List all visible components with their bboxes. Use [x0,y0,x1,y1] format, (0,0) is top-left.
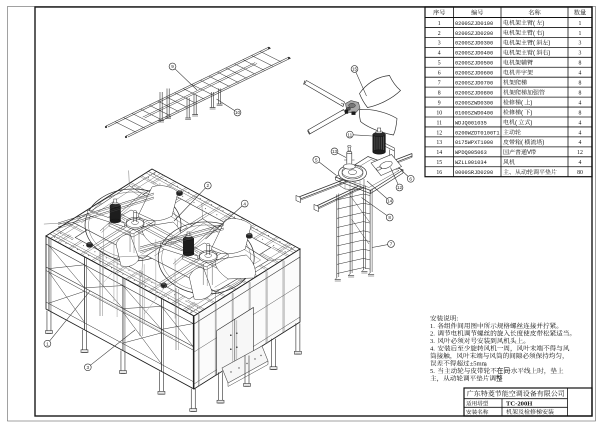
svg-text:12: 12 [397,185,403,190]
svg-text:0175WPXT1000: 0175WPXT1000 [455,140,493,146]
svg-text:5: 5 [438,61,441,67]
svg-text:0000SRJD0200: 0000SRJD0200 [455,170,493,176]
svg-text:0200SZJD0500: 0200SZJD0500 [455,61,493,67]
svg-text:WZLL001034: WZLL001034 [455,160,487,166]
svg-text:4: 4 [579,140,582,146]
svg-text::: : [456,316,458,323]
svg-text:0200SZJD0600: 0200SZJD0600 [455,71,493,77]
svg-text:): ) [542,31,544,37]
svg-text:11: 11 [347,132,352,137]
svg-text:WPDQ005063: WPDQ005063 [455,150,487,156]
svg-text:): ) [530,110,532,116]
svg-text:1: 1 [579,31,582,37]
svg-text:8: 8 [579,110,582,116]
svg-text:0100SZWD0400: 0100SZWD0400 [455,110,493,116]
svg-text:(: ( [521,110,523,116]
svg-text:13: 13 [332,149,338,154]
svg-text:6: 6 [438,71,441,77]
svg-text:V: V [527,150,531,156]
svg-text:1: 1 [438,21,441,27]
svg-text:4.: 4. [430,346,435,353]
svg-text:8: 8 [438,90,441,96]
svg-text:(: ( [521,100,523,106]
svg-text:8: 8 [579,90,582,96]
svg-text:): ) [548,51,550,57]
svg-text:在同: 在同 [497,366,511,375]
svg-text:0200SZJD0100: 0200SZJD0100 [455,21,493,27]
svg-text:13: 13 [436,140,442,146]
svg-text:4: 4 [579,120,582,126]
svg-text:0200SZJD0300: 0200SZJD0300 [455,41,493,47]
svg-text:10: 10 [235,110,241,115]
svg-text:整: 整 [496,374,503,383]
svg-text:±5mm: ±5mm [470,361,488,368]
svg-text:9: 9 [438,100,441,106]
svg-text:8: 8 [579,61,582,67]
svg-text:5.: 5. [430,368,435,375]
svg-text:3.: 3. [430,338,435,345]
svg-text:0200SZWD0300: 0200SZWD0300 [455,100,493,106]
svg-text:0200WZDT0100T1: 0200WZDT0100T1 [455,130,500,136]
svg-text:3: 3 [438,41,441,47]
svg-text:1: 1 [46,341,49,346]
svg-text:(: ( [515,120,517,126]
svg-text:TC-200H: TC-200H [506,401,533,408]
svg-text:7: 7 [390,242,393,247]
svg-text:11: 11 [436,120,442,126]
svg-text:8: 8 [579,81,582,87]
svg-text:15: 15 [352,67,358,72]
svg-text:3: 3 [579,41,582,47]
svg-text:): ) [542,140,544,146]
svg-text:2.: 2. [430,331,435,338]
svg-text:): ) [530,120,532,126]
svg-text:): ) [530,100,532,106]
svg-text:3: 3 [579,51,582,57]
svg-text:6: 6 [409,177,412,182]
svg-text:15: 15 [436,160,442,166]
svg-text:4: 4 [438,51,441,57]
svg-text:0200SZJD0800: 0200SZJD0800 [455,90,493,96]
svg-text:2: 2 [438,31,441,37]
svg-text:3: 3 [87,365,90,370]
svg-text:9: 9 [171,64,174,69]
svg-text:14: 14 [387,199,393,204]
svg-text:(: ( [533,51,535,57]
svg-text:1.: 1. [430,323,435,330]
svg-text:80: 80 [577,170,583,176]
svg-text:(: ( [533,31,535,37]
svg-text:): ) [542,21,544,27]
svg-text:(: ( [521,140,523,146]
svg-text:4: 4 [579,71,582,77]
svg-text:0200SZJD0400: 0200SZJD0400 [455,51,493,57]
svg-text:0200SZJD0200: 0200SZJD0200 [455,31,493,37]
svg-text:5: 5 [315,158,318,163]
svg-text:2: 2 [207,183,210,188]
svg-text:WDJQ001035: WDJQ001035 [455,120,487,126]
svg-text:(: ( [533,21,535,27]
svg-text:4: 4 [579,100,582,106]
svg-text:10: 10 [436,110,442,116]
svg-text:16: 16 [436,170,442,176]
svg-text:4: 4 [243,201,246,206]
svg-text:4: 4 [579,130,582,136]
svg-text:14: 14 [436,150,442,156]
svg-text:1: 1 [579,21,582,27]
svg-text:12: 12 [577,150,583,156]
svg-text:4: 4 [579,160,582,166]
svg-text:0200SZJD0700: 0200SZJD0700 [455,81,493,87]
svg-text:7: 7 [438,81,441,87]
svg-text:(: ( [533,41,535,47]
svg-text:12: 12 [436,130,442,136]
svg-text:8: 8 [388,215,391,220]
svg-text:): ) [548,41,550,47]
